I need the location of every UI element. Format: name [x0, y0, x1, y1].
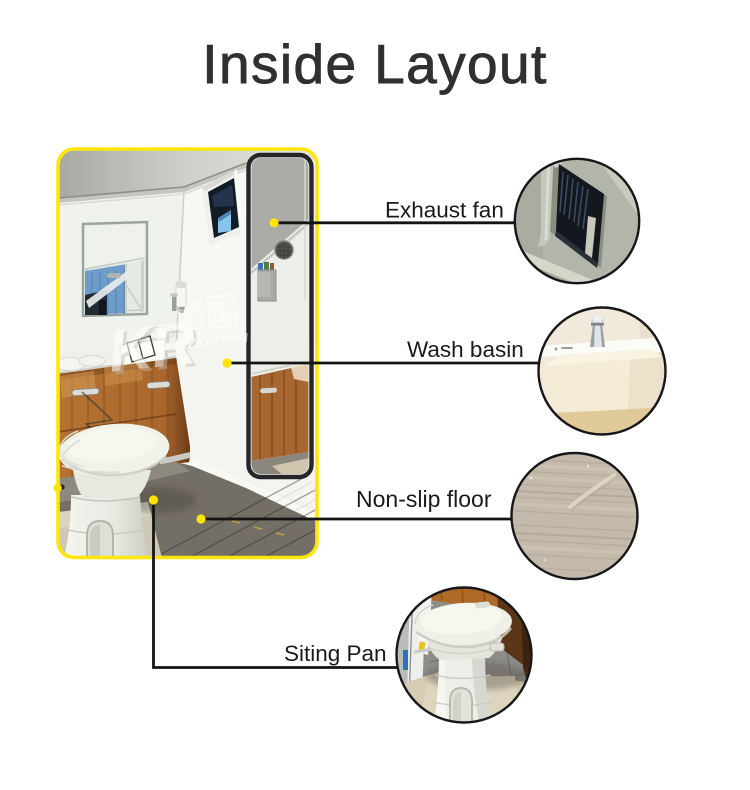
- svg-text:Non-slip floor: Non-slip floor: [356, 486, 492, 512]
- svg-text:Siting Pan: Siting Pan: [284, 641, 387, 666]
- svg-text:Wash basin: Wash basin: [407, 337, 524, 362]
- svg-text:Exhaust fan: Exhaust fan: [385, 198, 504, 223]
